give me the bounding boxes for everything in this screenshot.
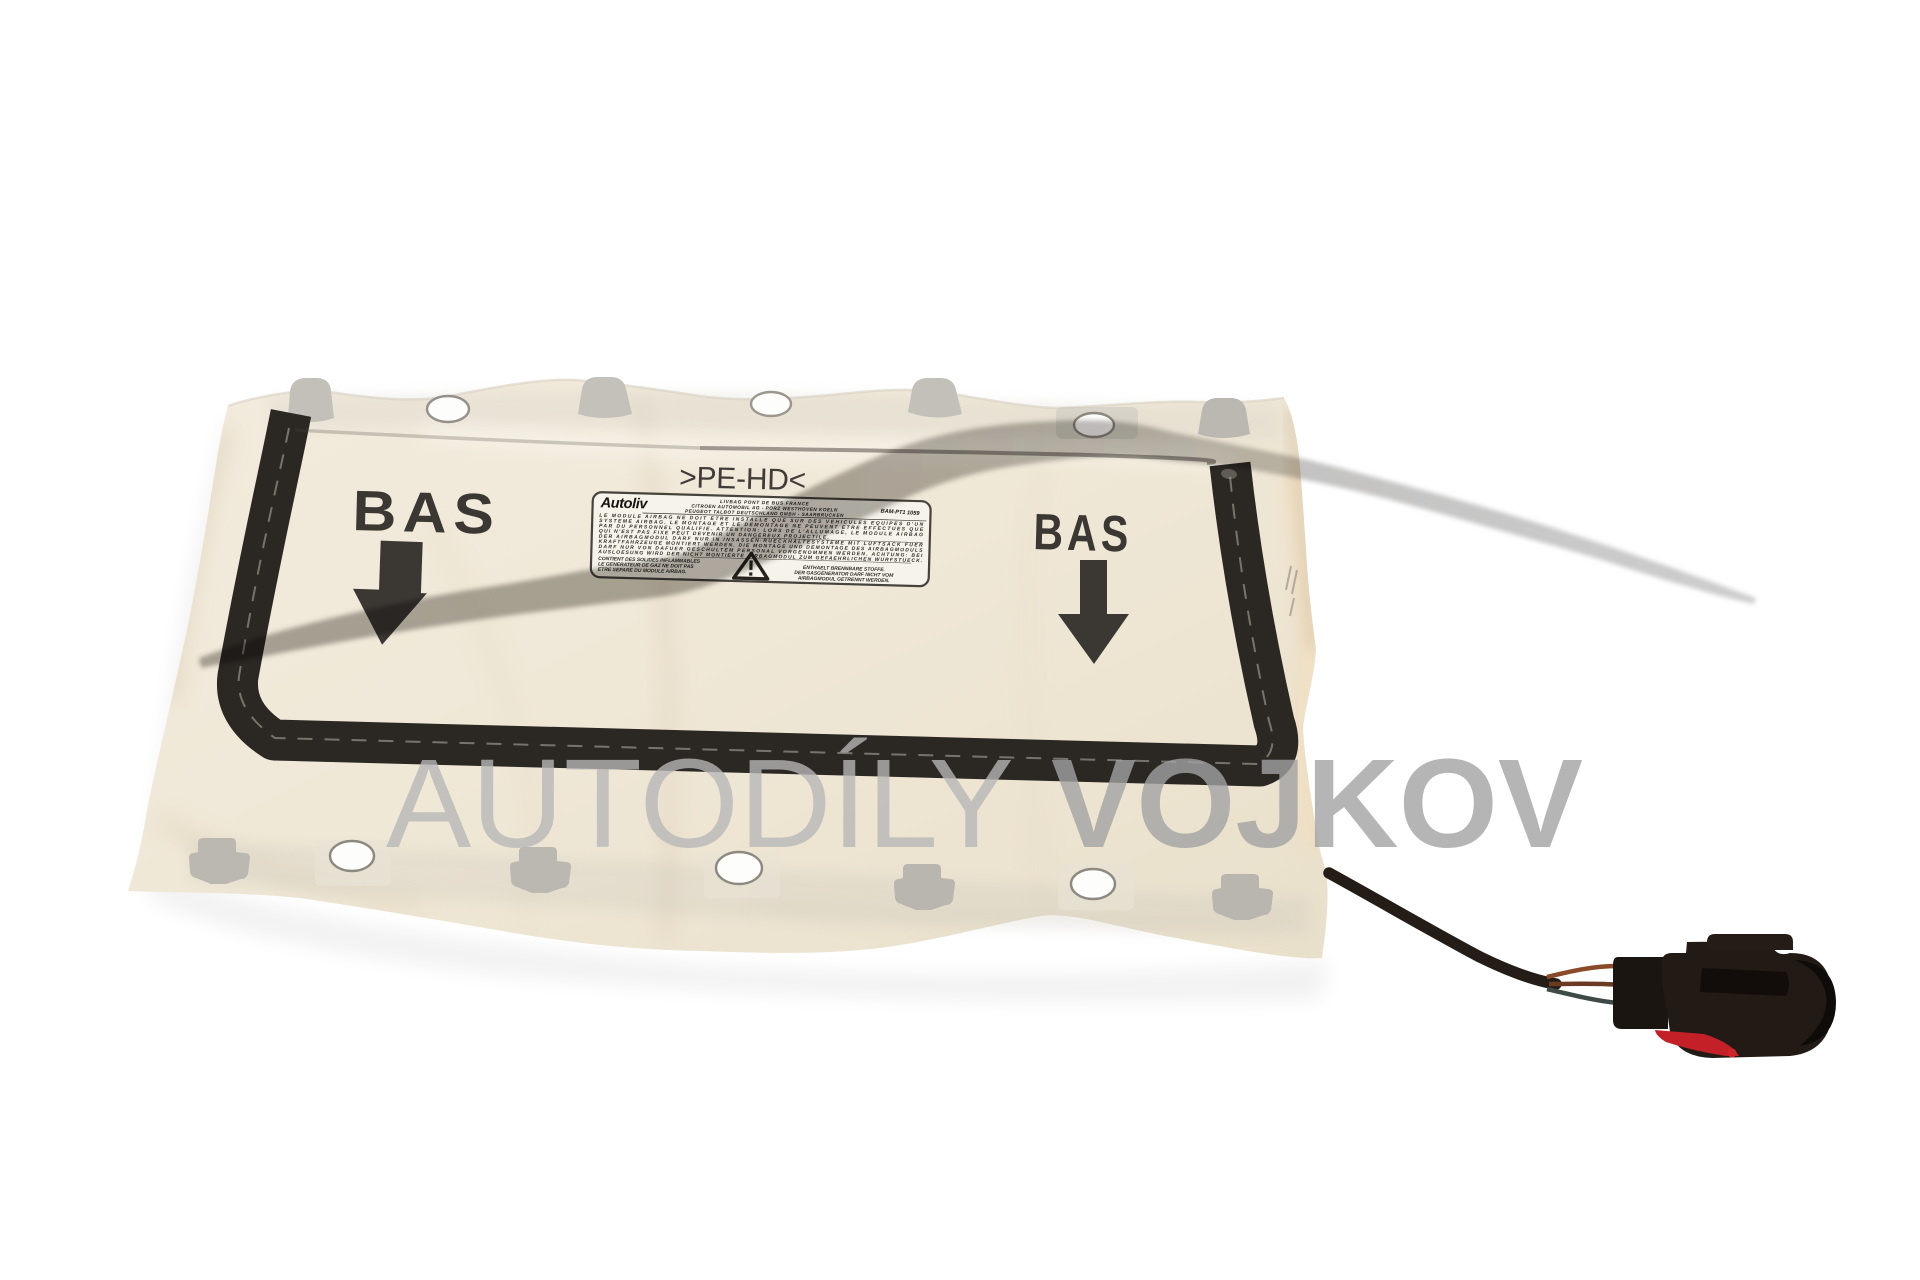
svg-text:AUTODÍLY: AUTODÍLY: [386, 733, 1014, 874]
svg-text:BAS: BAS: [1033, 503, 1133, 563]
svg-text:BAS: BAS: [352, 479, 502, 547]
svg-text:Autoliv: Autoliv: [599, 495, 648, 512]
svg-text:>PE-HD<: >PE-HD<: [679, 461, 807, 497]
svg-text:VOJKOV: VOJKOV: [1051, 733, 1583, 874]
